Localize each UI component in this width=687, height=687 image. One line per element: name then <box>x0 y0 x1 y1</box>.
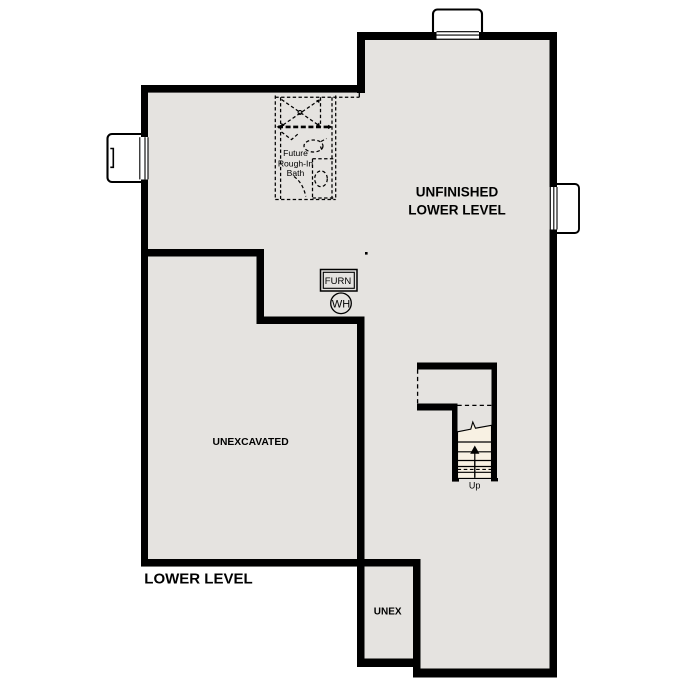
svg-text:UNEX: UNEX <box>374 607 402 618</box>
svg-text:Future: Future <box>283 148 308 158</box>
svg-text:UNFINISHED: UNFINISHED <box>416 185 499 200</box>
svg-text:FURN: FURN <box>325 276 352 287</box>
svg-text:UNEXCAVATED: UNEXCAVATED <box>213 437 289 448</box>
svg-text:Rough-In: Rough-In <box>278 158 314 168</box>
svg-text:Up: Up <box>469 480 481 490</box>
svg-text:Bath: Bath <box>287 168 305 178</box>
svg-text:LOWER LEVEL: LOWER LEVEL <box>408 203 506 218</box>
svg-text:LOWER LEVEL: LOWER LEVEL <box>144 570 252 587</box>
svg-text:WH: WH <box>332 298 350 310</box>
